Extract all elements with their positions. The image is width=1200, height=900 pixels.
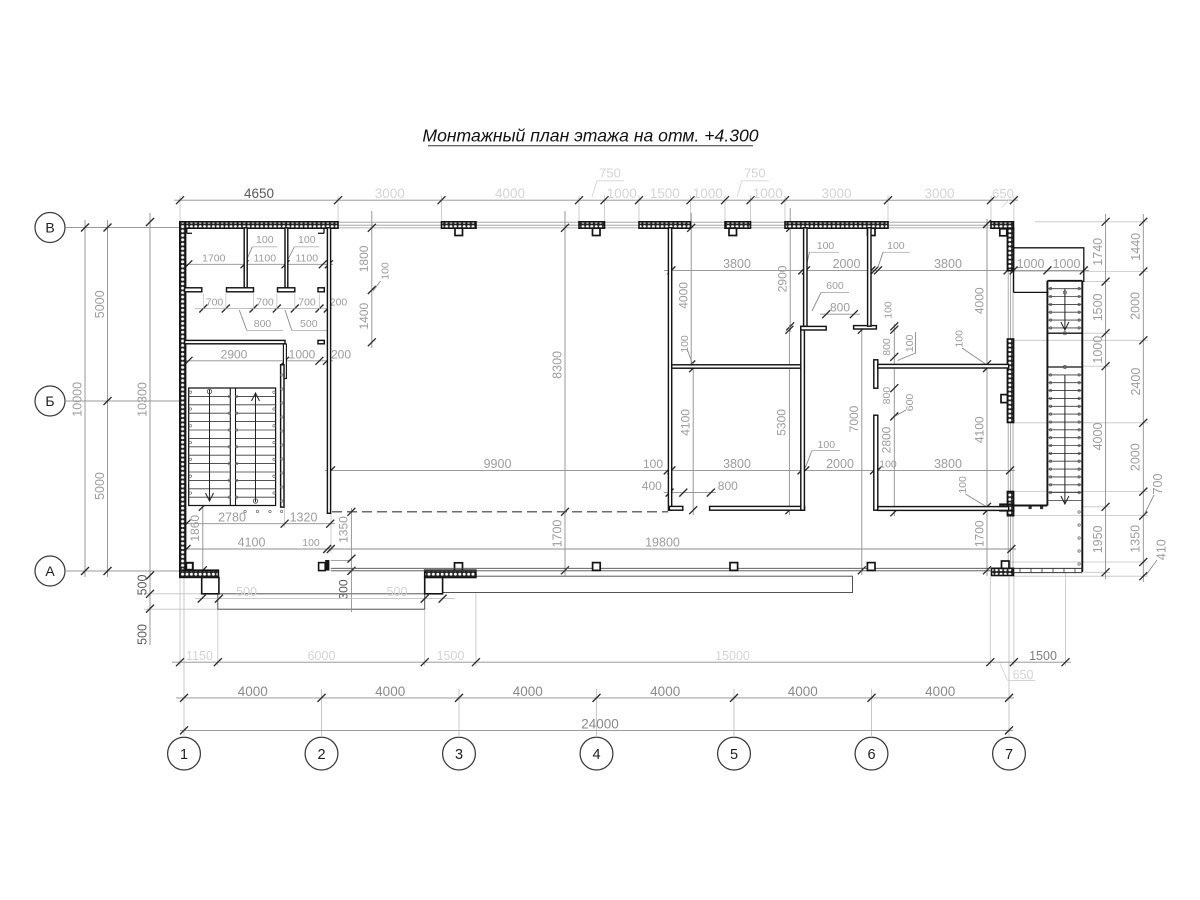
svg-text:500: 500 <box>135 575 149 596</box>
svg-text:200: 200 <box>331 347 351 361</box>
svg-text:700: 700 <box>1151 474 1165 495</box>
svg-text:1500: 1500 <box>650 186 680 201</box>
svg-text:3800: 3800 <box>934 457 962 471</box>
svg-text:100: 100 <box>953 330 965 348</box>
svg-text:500: 500 <box>387 585 408 599</box>
svg-text:1400: 1400 <box>357 303 371 330</box>
svg-text:600: 600 <box>904 394 916 412</box>
svg-text:1150: 1150 <box>186 649 213 663</box>
svg-text:4000: 4000 <box>495 186 525 201</box>
svg-text:2000: 2000 <box>826 457 854 471</box>
svg-text:100: 100 <box>256 234 274 246</box>
svg-text:15000: 15000 <box>715 649 750 663</box>
svg-text:2900: 2900 <box>221 347 248 361</box>
svg-text:750: 750 <box>744 165 766 180</box>
svg-text:4000: 4000 <box>238 684 268 699</box>
svg-text:400: 400 <box>642 479 662 493</box>
svg-text:100: 100 <box>817 240 835 252</box>
svg-text:Монтажный план этажа на отм. +: Монтажный план этажа на отм. +4.300 <box>422 126 758 146</box>
svg-text:800: 800 <box>718 479 738 493</box>
svg-text:800: 800 <box>881 338 893 356</box>
svg-text:1700: 1700 <box>202 252 226 264</box>
svg-text:19800: 19800 <box>645 536 680 550</box>
svg-text:В: В <box>45 220 54 236</box>
svg-text:2: 2 <box>317 747 325 763</box>
svg-text:4000: 4000 <box>1091 423 1105 451</box>
svg-text:1500: 1500 <box>1091 293 1105 321</box>
svg-text:4000: 4000 <box>650 684 680 699</box>
svg-text:1000: 1000 <box>1053 257 1081 271</box>
svg-text:1740: 1740 <box>1091 238 1105 266</box>
svg-text:9900: 9900 <box>484 457 512 471</box>
svg-text:3: 3 <box>455 747 463 763</box>
svg-text:2800: 2800 <box>880 426 894 453</box>
svg-text:4000: 4000 <box>375 684 405 699</box>
svg-text:4: 4 <box>592 747 600 763</box>
svg-text:100: 100 <box>298 234 316 246</box>
svg-text:800: 800 <box>254 318 272 330</box>
svg-text:2000: 2000 <box>1129 292 1143 320</box>
svg-text:100: 100 <box>643 457 663 471</box>
svg-text:2780: 2780 <box>218 510 246 524</box>
svg-text:700: 700 <box>256 297 274 309</box>
svg-text:10300: 10300 <box>135 382 149 417</box>
svg-text:10000: 10000 <box>71 382 85 417</box>
svg-text:Б: Б <box>45 393 54 409</box>
svg-text:750: 750 <box>599 165 621 180</box>
svg-text:300: 300 <box>337 579 351 599</box>
svg-text:650: 650 <box>992 186 1014 201</box>
svg-text:3800: 3800 <box>723 257 751 271</box>
svg-text:4100: 4100 <box>238 536 266 550</box>
svg-text:5000: 5000 <box>93 472 107 500</box>
svg-text:1700: 1700 <box>551 520 565 548</box>
svg-text:1950: 1950 <box>1091 525 1105 553</box>
svg-text:4100: 4100 <box>972 416 986 443</box>
svg-text:1440: 1440 <box>1129 233 1143 261</box>
svg-text:600: 600 <box>826 280 844 292</box>
svg-text:1000: 1000 <box>1091 336 1105 364</box>
svg-text:1100: 1100 <box>254 252 277 264</box>
svg-text:А: А <box>45 563 55 579</box>
svg-text:1500: 1500 <box>437 649 465 663</box>
svg-text:1860: 1860 <box>188 515 202 542</box>
svg-text:100: 100 <box>679 335 691 353</box>
svg-text:3000: 3000 <box>375 186 405 201</box>
svg-text:7000: 7000 <box>847 405 861 432</box>
svg-text:1000: 1000 <box>693 186 723 201</box>
svg-text:4000: 4000 <box>972 287 986 314</box>
svg-text:4000: 4000 <box>925 684 955 699</box>
svg-text:1320: 1320 <box>290 510 318 524</box>
svg-text:4650: 4650 <box>244 186 274 201</box>
svg-text:100: 100 <box>302 537 320 549</box>
svg-text:1350: 1350 <box>337 516 351 543</box>
svg-text:3800: 3800 <box>723 457 751 471</box>
svg-text:3000: 3000 <box>821 186 851 201</box>
svg-text:5300: 5300 <box>775 409 789 436</box>
svg-text:100: 100 <box>904 334 916 352</box>
svg-text:2400: 2400 <box>1129 368 1143 396</box>
svg-text:6000: 6000 <box>308 649 336 663</box>
svg-text:1350: 1350 <box>1129 525 1143 553</box>
svg-text:3800: 3800 <box>934 257 962 271</box>
svg-text:1: 1 <box>180 747 188 763</box>
svg-text:8300: 8300 <box>550 351 564 379</box>
svg-text:500: 500 <box>135 624 149 645</box>
svg-text:4100: 4100 <box>679 409 693 436</box>
svg-text:1000: 1000 <box>607 186 637 201</box>
svg-text:500: 500 <box>300 318 318 330</box>
svg-text:3000: 3000 <box>924 186 954 201</box>
svg-text:4000: 4000 <box>677 282 691 309</box>
svg-text:5: 5 <box>730 747 738 763</box>
svg-text:1800: 1800 <box>357 245 371 272</box>
svg-text:800: 800 <box>830 301 850 315</box>
svg-text:2000: 2000 <box>833 257 861 271</box>
svg-text:1000: 1000 <box>1017 257 1045 271</box>
svg-text:700: 700 <box>206 297 224 309</box>
svg-text:100: 100 <box>380 262 392 280</box>
svg-text:100: 100 <box>957 476 969 494</box>
svg-text:24000: 24000 <box>581 716 619 731</box>
svg-text:1700: 1700 <box>972 520 986 547</box>
svg-text:200: 200 <box>330 297 348 309</box>
svg-text:410: 410 <box>1154 539 1168 560</box>
svg-text:1000: 1000 <box>289 347 316 361</box>
svg-text:100: 100 <box>883 301 895 319</box>
svg-text:650: 650 <box>1013 668 1034 682</box>
svg-text:1500: 1500 <box>1029 649 1057 663</box>
svg-text:1000: 1000 <box>753 186 783 201</box>
svg-text:7: 7 <box>1005 747 1013 763</box>
svg-text:1100: 1100 <box>296 252 319 264</box>
svg-text:4000: 4000 <box>788 684 818 699</box>
svg-text:800: 800 <box>881 387 893 405</box>
svg-text:5000: 5000 <box>93 290 107 318</box>
svg-text:6: 6 <box>867 747 875 763</box>
svg-text:4000: 4000 <box>513 684 543 699</box>
svg-text:700: 700 <box>298 297 316 309</box>
svg-text:100: 100 <box>818 439 836 451</box>
svg-text:2000: 2000 <box>1129 443 1143 471</box>
svg-text:100: 100 <box>887 240 905 252</box>
svg-text:2900: 2900 <box>776 265 790 292</box>
svg-text:500: 500 <box>236 585 257 599</box>
